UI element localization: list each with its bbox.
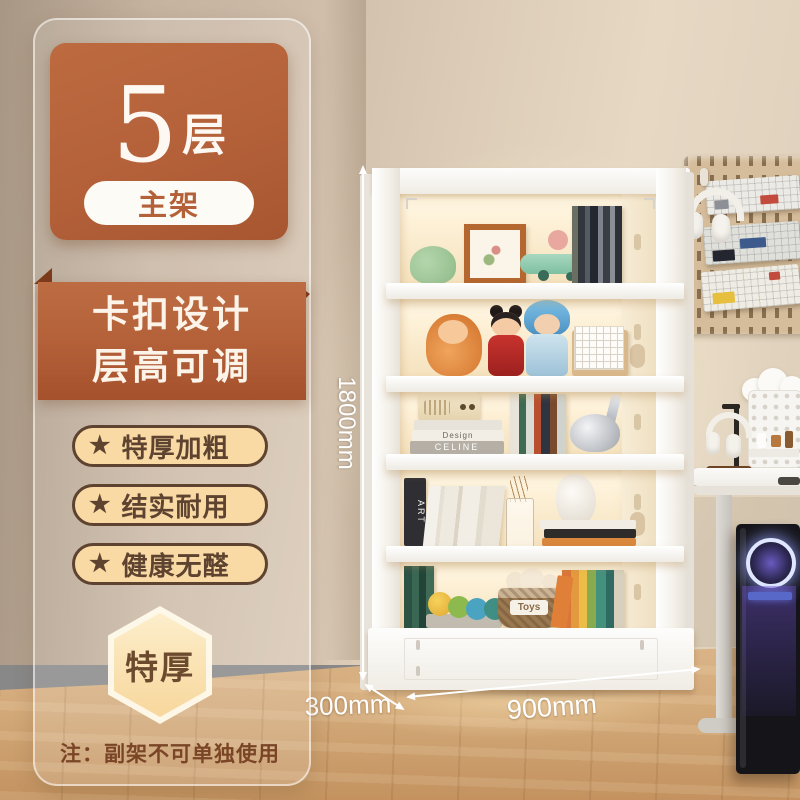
shelf-board-1 <box>386 283 684 299</box>
base-hinge-mark3 <box>640 640 644 650</box>
tier-count-card: 5 层 主架 <box>50 43 288 240</box>
star-icon: ★ <box>89 434 112 458</box>
shelf-post-left <box>372 168 400 690</box>
star-icon: ★ <box>89 493 112 517</box>
toy-bear <box>548 230 568 250</box>
stack-book-white <box>540 520 636 529</box>
corner-bracket-left <box>406 198 417 209</box>
keyboard-accent-yellow <box>712 291 735 304</box>
desk-mat <box>778 477 800 485</box>
feature-ribbon: 卡扣设计 层高可调 <box>38 282 306 400</box>
base-hinge-mark2 <box>416 666 420 676</box>
feature-pill-healthy: ★ 健康无醛 <box>72 543 268 585</box>
main-frame-tag: 主架 <box>84 181 254 225</box>
basket-plush-head <box>520 568 544 590</box>
desk-leg <box>716 495 732 723</box>
headphone-hook <box>700 168 708 186</box>
books-row-dark <box>572 206 622 283</box>
shelf-side-right-edge <box>686 172 694 686</box>
radio-knob1 <box>460 404 466 410</box>
bookshelf: Design CELINE ART Toys <box>360 168 698 694</box>
cat-figurine-body <box>570 414 620 452</box>
glass-cup <box>506 498 534 548</box>
white-sculpture <box>556 474 596 526</box>
book-slab-celine: CELINE <box>410 441 504 454</box>
main-frame-tag-label: 主架 <box>138 182 200 224</box>
feature-pill-thick: ★ 特厚加粗 <box>72 425 268 467</box>
height-dimension-label: 1800mm <box>334 372 360 474</box>
depth-dimension-label: 300mm <box>299 688 396 722</box>
base-recess-panel <box>404 638 658 680</box>
stack-book-orange <box>542 538 636 546</box>
toy-plane-wheel1 <box>538 270 549 281</box>
book-slab-design: Design <box>412 430 504 441</box>
feature-label-sturdy: 结实耐用 <box>122 487 230 524</box>
tier-count-number: 5 <box>112 76 178 175</box>
organizer-cup <box>757 433 766 448</box>
books-row-mid <box>510 394 566 454</box>
desk-calendar-sheet <box>574 326 624 370</box>
stand-earcup-left <box>706 432 720 455</box>
keyboard-accent-blue <box>740 237 767 249</box>
toys-basket-label: Toys <box>510 600 548 615</box>
shelf-top-rail <box>372 168 690 194</box>
figurine-orange-face <box>438 320 468 344</box>
radio-grill <box>424 400 450 415</box>
book-design-label: Design <box>443 431 474 440</box>
ribbon-line-1: 卡扣设计 <box>92 289 252 341</box>
keyboard-accent-black <box>712 249 735 262</box>
pc-fan-icon <box>746 538 796 588</box>
figurine-girl-head <box>491 312 521 337</box>
star-icon: ★ <box>89 552 112 576</box>
shelf-post-right <box>656 168 686 690</box>
toys-label: Toys <box>518 602 541 613</box>
green-headphones <box>410 246 456 284</box>
keyboard-white-yellow <box>700 264 800 312</box>
shelf-base <box>368 628 694 690</box>
side-handle-hole <box>630 344 645 368</box>
desk-organizer-pegboard <box>748 390 800 468</box>
height-dimension-line <box>362 172 364 674</box>
feature-label-healthy: 健康无醛 <box>122 546 230 583</box>
footnote-text: 注：副架不可单独使用 <box>33 738 307 768</box>
stand-earcup-right <box>726 434 741 458</box>
photo-frame <box>464 224 526 284</box>
organizer-plant <box>771 435 781 447</box>
pc-tower <box>736 524 800 774</box>
book-celine-label: CELINE <box>435 442 480 452</box>
radio-knob2 <box>469 404 475 410</box>
tier-count-row: 5 层 <box>112 43 226 175</box>
hex-badge-label: 特厚 <box>125 641 195 689</box>
base-hinge-mark1 <box>416 640 420 650</box>
stack-book-black <box>544 529 636 538</box>
figurine-blue-face <box>534 314 560 335</box>
height-arrow-top-icon <box>359 165 367 174</box>
book-slab-top <box>414 420 502 430</box>
organizer-bottle <box>785 431 793 448</box>
figurine-blue-body <box>526 334 568 376</box>
product-poster: Design CELINE ART Toys <box>0 0 800 800</box>
feature-pill-sturdy: ★ 结实耐用 <box>72 484 268 526</box>
art-magazine: ART <box>404 478 426 546</box>
pc-rgb-glow <box>742 586 796 716</box>
keyboard-accent-red2 <box>769 271 781 280</box>
shelf-side-panel-inner <box>622 194 656 630</box>
feature-label-thick: 特厚加粗 <box>122 428 230 465</box>
headphone-earcup-right <box>712 214 730 243</box>
tier-count-unit: 层 <box>178 99 226 175</box>
shelf-board-3 <box>386 454 684 470</box>
shelf-board-4 <box>386 546 684 562</box>
ribbon-line-2: 层高可调 <box>92 341 252 393</box>
organizer-tray <box>749 449 799 457</box>
white-sketchbooks <box>423 486 505 546</box>
desk-edge <box>692 486 800 495</box>
figurine-girl-body <box>488 335 524 376</box>
corner-bracket-right <box>644 198 655 209</box>
pc-gpu-bar <box>748 592 792 600</box>
keyboard-accent-red <box>760 194 779 204</box>
radio-vintage <box>418 392 480 422</box>
shelf-board-2 <box>386 376 684 392</box>
hex-badge-inner: 特厚 <box>114 613 206 717</box>
